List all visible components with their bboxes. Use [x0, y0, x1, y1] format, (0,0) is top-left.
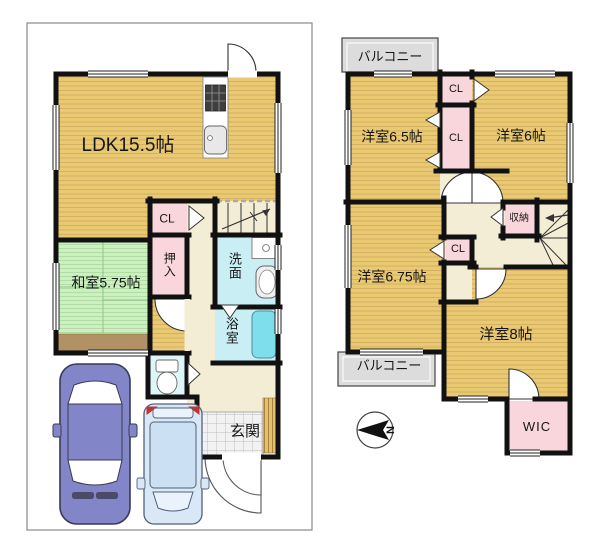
kitchen-counter — [203, 77, 228, 158]
stairs-floor-1f — [215, 201, 278, 235]
minivan-windshield — [153, 492, 193, 511]
label-wic: WIC — [523, 420, 551, 434]
label-closet-top: CL — [449, 84, 463, 96]
car-sedan — [53, 364, 137, 524]
label-closet-1f: CL — [159, 213, 174, 226]
kitchen-door-arc — [228, 44, 256, 72]
label-room-65: 洋室6.5帖 — [361, 130, 422, 145]
stove-icon — [206, 85, 226, 111]
room-8-floor-left — [444, 302, 478, 399]
sedan-mirror-right — [129, 424, 137, 437]
label-balcony-top: バルコニー — [358, 50, 423, 64]
label-genkan: 玄関 — [230, 424, 260, 440]
label-yokushitsu: 浴室 — [224, 317, 238, 345]
sedan-mirror-left — [53, 424, 61, 437]
label-balcony-bottom: バルコニー — [357, 359, 422, 373]
label-ldk: LDK15.5帖 — [82, 136, 175, 156]
label-washitsu: 和室5.75帖 — [71, 276, 140, 291]
room-ldk-floor-lower — [56, 201, 150, 242]
sedan-grille-right — [96, 492, 118, 499]
sedan-windshield — [68, 381, 122, 404]
sedan-grille-left — [72, 492, 94, 499]
label-senmen: 洗面 — [227, 252, 241, 280]
washitsu-veranda-strip — [59, 334, 148, 351]
compass-icon: N — [357, 412, 397, 448]
label-oshiire: 押入 — [163, 252, 176, 278]
minivan-mirror-right — [201, 478, 209, 489]
label-closet-mid: CL — [449, 133, 463, 145]
bathtub-icon — [252, 311, 276, 358]
minivan-mirror-left — [137, 478, 145, 489]
toilet-icon — [156, 360, 178, 394]
compass-north-label: N — [385, 426, 397, 434]
minivan-cabin — [150, 422, 196, 488]
sedan-roof — [68, 404, 122, 460]
sedan-rear-window — [68, 460, 122, 485]
label-shunou: 収納 — [509, 214, 529, 225]
car-minivan — [137, 404, 209, 524]
kitchen-sink-icon — [205, 126, 227, 154]
minivan-rear-window — [153, 408, 193, 418]
floor-plan-image: N LDK15.5帖 和室5.75帖 CL 押入 洗面 浴室 玄関 バルコニー … — [0, 0, 600, 556]
label-room-8: 洋室8帖 — [479, 327, 532, 343]
label-room-6: 洋室6帖 — [496, 129, 546, 144]
label-room-675: 洋室6.75帖 — [357, 270, 426, 285]
label-closet-low: CL — [451, 244, 465, 256]
